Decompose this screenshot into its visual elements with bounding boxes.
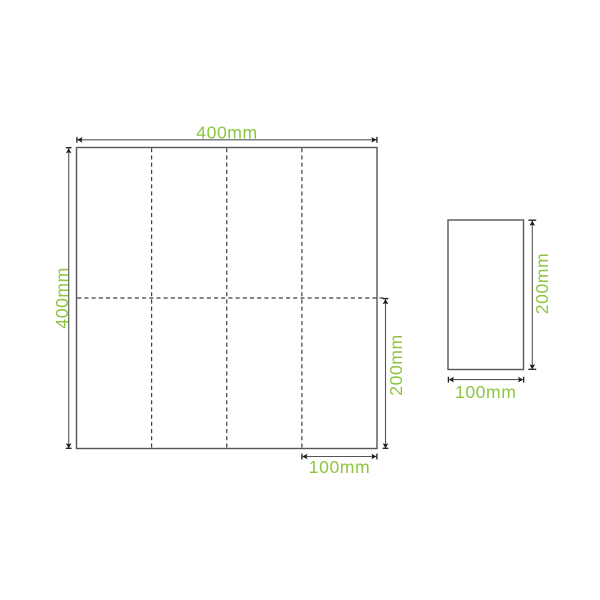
svg-text:100mm: 100mm: [309, 457, 370, 477]
svg-text:200mm: 200mm: [532, 253, 552, 314]
svg-text:100mm: 100mm: [455, 382, 516, 402]
svg-text:400mm: 400mm: [52, 267, 72, 328]
svg-text:200mm: 200mm: [386, 334, 406, 395]
svg-text:400mm: 400mm: [196, 123, 257, 143]
